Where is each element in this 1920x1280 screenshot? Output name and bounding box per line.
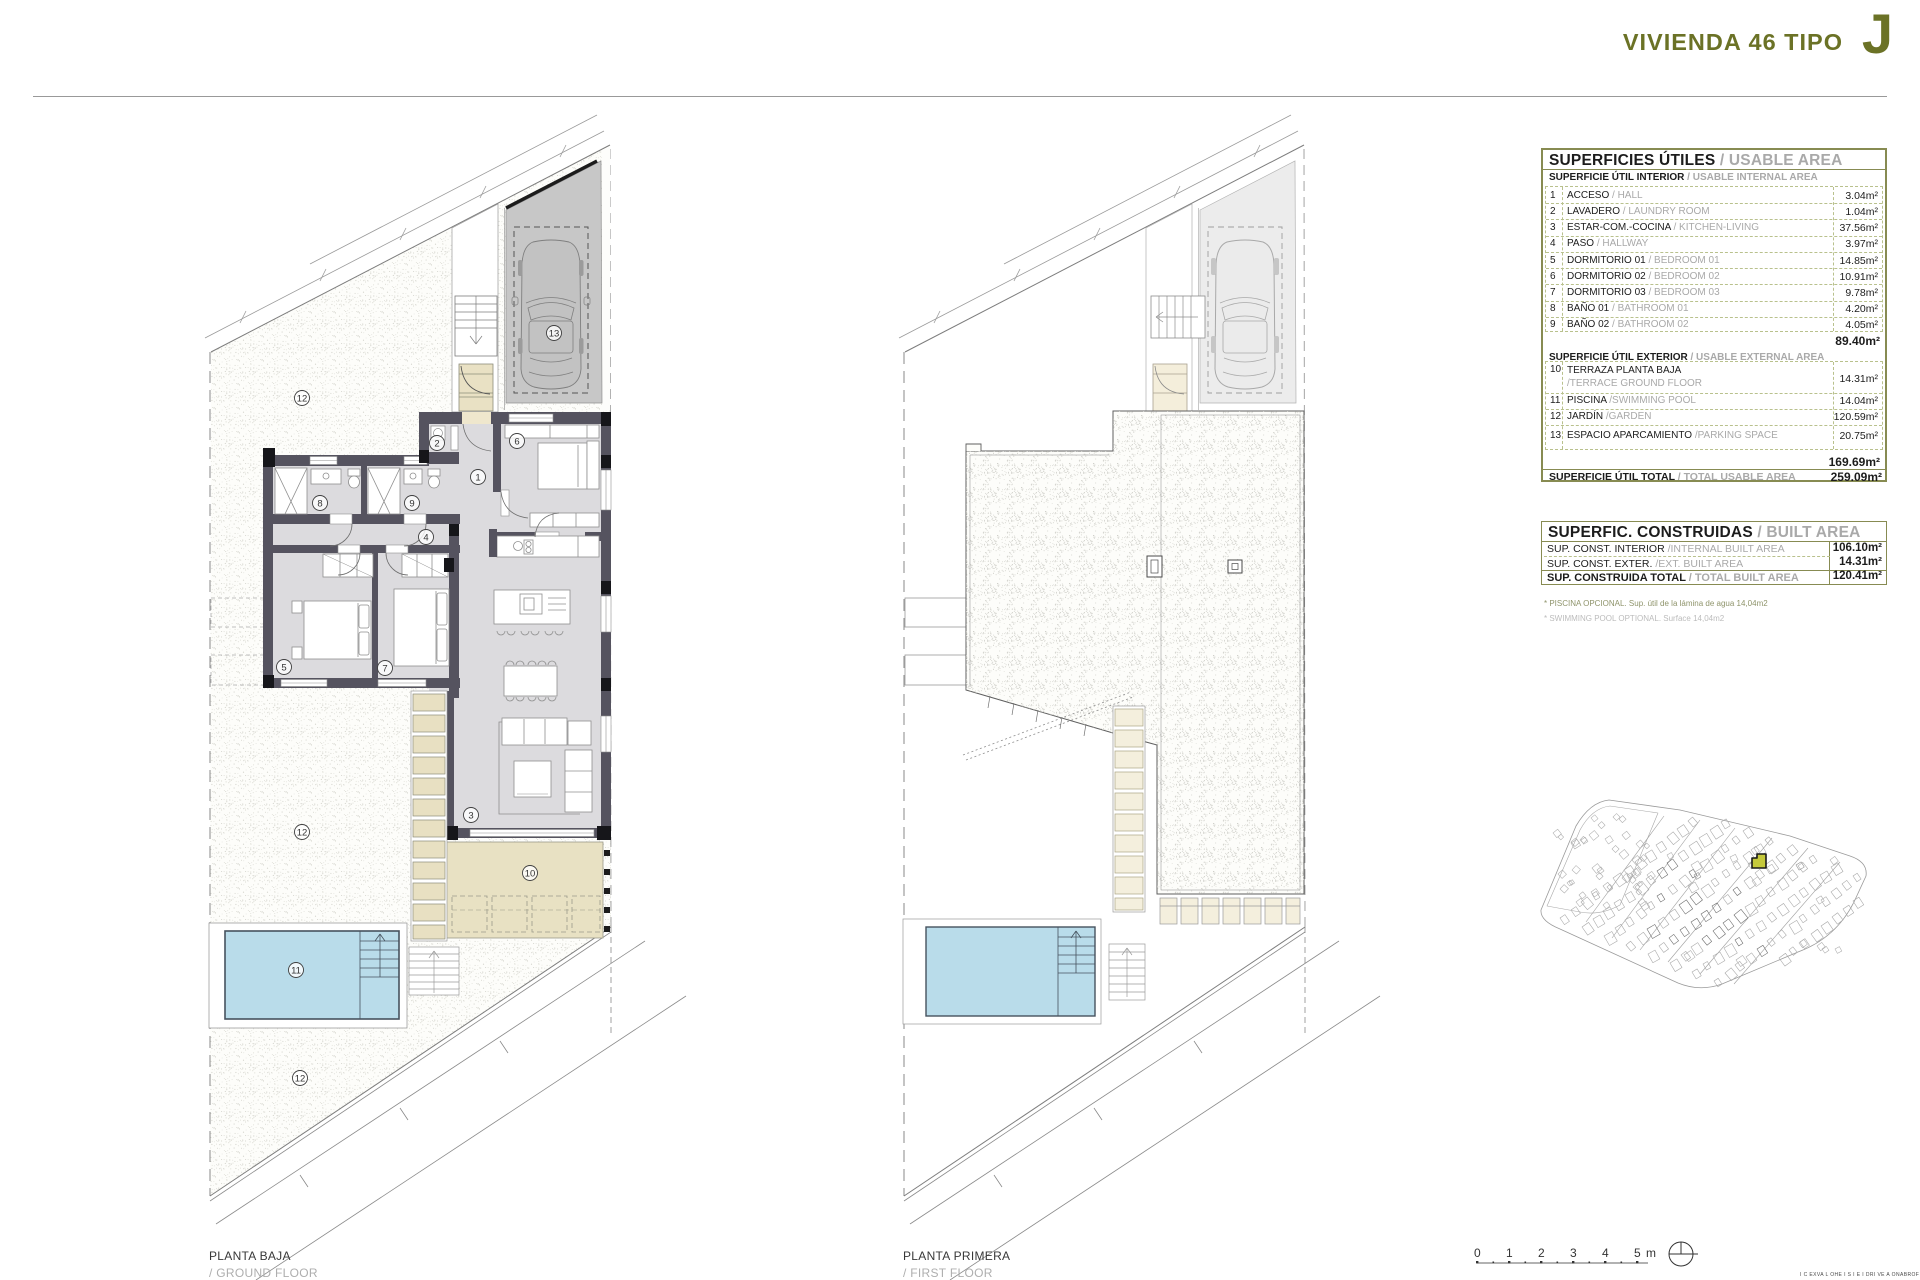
svg-text:5: 5 <box>281 663 286 674</box>
svg-text:4: 4 <box>1602 1246 1609 1260</box>
svg-text:13: 13 <box>549 329 560 340</box>
svg-text:12: 12 <box>297 828 308 839</box>
svg-text:1: 1 <box>1506 1246 1513 1260</box>
svg-text:2: 2 <box>1538 1246 1545 1260</box>
svg-text:7: 7 <box>382 664 387 675</box>
svg-text:8: 8 <box>317 499 322 510</box>
svg-text:9: 9 <box>409 499 414 510</box>
svg-text:11: 11 <box>291 966 301 977</box>
svg-text:2: 2 <box>434 439 439 450</box>
svg-text:m: m <box>1646 1246 1656 1260</box>
svg-text:5: 5 <box>1634 1246 1641 1260</box>
svg-text:0: 0 <box>1474 1246 1481 1260</box>
svg-text:12: 12 <box>295 1074 306 1085</box>
svg-text:6: 6 <box>514 437 519 448</box>
svg-text:3: 3 <box>468 811 473 822</box>
svg-text:1: 1 <box>475 473 480 484</box>
svg-text:I C EXVA L OHE I S I E I DRI V: I C EXVA L OHE I S I E I DRI VE A ONABRO… <box>1800 1272 1920 1278</box>
svg-text:10: 10 <box>525 869 536 880</box>
svg-text:12: 12 <box>297 394 308 405</box>
svg-text:3: 3 <box>1570 1246 1577 1260</box>
svg-text:4: 4 <box>423 533 428 544</box>
